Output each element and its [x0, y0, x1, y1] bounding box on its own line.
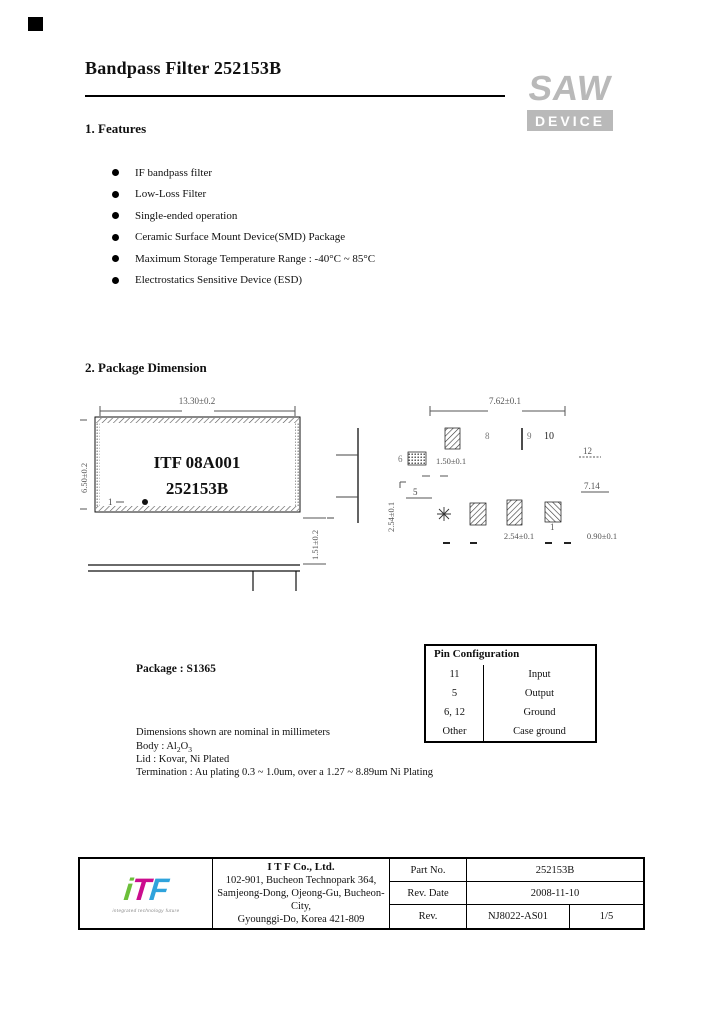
saw-device-logo: SAW DEVICE: [527, 70, 613, 131]
pin1-label: 1: [108, 497, 113, 507]
seal-hatch-bottom: [96, 506, 299, 511]
dim-thickness: 1.51±0.2: [310, 530, 320, 560]
dim-top-witness-lines: [100, 406, 295, 416]
bullet-icon: [112, 234, 119, 241]
itf-letter-f: F: [148, 872, 170, 907]
subscript: 3: [188, 745, 192, 754]
pad-label-1: 1: [550, 522, 555, 532]
pad-left-mid: [408, 452, 426, 465]
dim-side-pitch: 2.54±0.1: [386, 502, 396, 532]
bullet-icon: [112, 169, 119, 176]
feature-item: Low-Loss Filter: [112, 184, 532, 206]
seal-hatch-top: [96, 418, 299, 423]
pad-label-10: 10: [544, 431, 554, 442]
pad-label-5: 5: [413, 487, 418, 497]
pin-cell: Other: [426, 722, 483, 741]
pin-cell: 11: [426, 665, 483, 684]
dim-top-width: 13.30±0.2: [179, 396, 215, 406]
page-number: 1/5: [570, 905, 643, 928]
pin-table-body: 11 Input 5 Output 6, 12 Ground Other Cas…: [426, 665, 595, 741]
pad-bottom-2: [470, 503, 486, 525]
pad-bottom-3: [507, 500, 522, 525]
feature-text: Electrostatics Sensitive Device (ESD): [135, 274, 302, 286]
itf-logo: iTF integrated technology future: [80, 859, 213, 928]
dim-left-height: 6.50±0.2: [79, 463, 89, 493]
pin-cell: 6, 12: [426, 703, 483, 722]
features-list: IF bandpass filter Low-Loss Filter Singl…: [112, 162, 532, 291]
title-rule: [85, 95, 505, 97]
saw-logo-device-label: DEVICE: [527, 110, 613, 131]
feature-item: Single-ended operation: [112, 205, 532, 227]
company-name: I T F Co., Ltd.: [267, 861, 334, 874]
package-dimension-drawing: 13.30±0.2 ITF 08A001 252153B 1 6.50±0.2 …: [78, 390, 638, 605]
function-cell: Input: [483, 665, 595, 684]
package-dimension-heading: 2. Package Dimension: [85, 360, 207, 376]
rev-date-value: 2008-11-10: [467, 882, 643, 905]
note-body-material: Body : Al2O3: [136, 741, 192, 754]
pin-cell: 5: [426, 684, 483, 703]
feature-item: IF bandpass filter: [112, 162, 532, 184]
dim-bottom-width: 7.62±0.1: [489, 396, 521, 406]
dim-pad-width: 0.90±0.1: [587, 531, 617, 541]
feature-item: Electrostatics Sensitive Device (ESD): [112, 270, 532, 292]
footer-title-block: iTF integrated technology future I T F C…: [78, 857, 645, 930]
note-dimensions: Dimensions shown are nominal in millimet…: [136, 727, 330, 738]
dim-right: 7.14: [584, 481, 600, 491]
side-view-ticks: [327, 455, 358, 518]
pad-label-6: 6: [398, 454, 403, 464]
pad-label-9: 9: [527, 431, 532, 441]
seal-hatch-left: [96, 423, 100, 506]
part-no-value: 252153B: [467, 859, 643, 882]
pad-label-8: 8: [485, 431, 490, 441]
dim-pad-len: 1.50±0.1: [436, 456, 466, 466]
feature-text: Single-ended operation: [135, 210, 237, 222]
pin-table-title: Pin Configuration: [426, 646, 595, 665]
feature-text: Low-Loss Filter: [135, 188, 206, 200]
function-cell: Case ground: [483, 722, 595, 741]
side-view-pins: [253, 571, 296, 591]
feature-item: Ceramic Surface Mount Device(SMD) Packag…: [112, 227, 532, 249]
dim-pad-pitch: 2.54±0.1: [504, 531, 534, 541]
function-cell: Output: [483, 684, 595, 703]
part-no-label: Part No.: [390, 859, 467, 882]
device-marking-line2: 252153B: [166, 479, 228, 498]
pad-top-left: [445, 428, 460, 449]
feature-item: Maximum Storage Temperature Range : -40°…: [112, 248, 532, 270]
note-body-text: Body : Al: [136, 741, 177, 752]
saw-logo-text: SAW: [524, 70, 615, 108]
function-cell: Ground: [483, 703, 595, 722]
seal-hatch-right: [295, 423, 299, 506]
feature-text: IF bandpass filter: [135, 167, 212, 179]
rev-value: NJ8022-AS01: [467, 905, 570, 928]
bullet-icon: [112, 255, 119, 262]
company-address-block: I T F Co., Ltd. 102-901, Bucheon Technop…: [213, 859, 390, 928]
feature-text: Ceramic Surface Mount Device(SMD) Packag…: [135, 231, 345, 243]
pad-bottom-4: [545, 502, 561, 522]
itf-logo-letters: iTF: [123, 874, 170, 906]
rev-date-label: Rev. Date: [390, 882, 467, 905]
bullet-icon: [112, 191, 119, 198]
device-marking-line1: ITF 08A001: [154, 453, 241, 472]
feature-text: Maximum Storage Temperature Range : -40°…: [135, 253, 375, 265]
company-address-line: 102-901, Bucheon Technopark 364,: [226, 874, 376, 887]
bullet-icon: [112, 212, 119, 219]
company-address-line: Gyounggi-Do, Korea 421-809: [238, 913, 365, 926]
note-termination: Termination : Au plating 0.3 ~ 1.0um, ov…: [136, 767, 433, 778]
features-heading: 1. Features: [85, 121, 146, 137]
pin-configuration-table: Pin Configuration 11 Input 5 Output 6, 1…: [424, 644, 597, 743]
pad-bottom-cross: [437, 507, 451, 521]
pin1-dot: [142, 499, 148, 505]
rev-label: Rev.: [390, 905, 467, 928]
note-lid-material: Lid : Kovar, Ni Plated: [136, 754, 229, 765]
bullet-icon: [112, 277, 119, 284]
pad-label-12: 12: [583, 446, 592, 456]
page-corner-mark: [28, 17, 43, 31]
page-title: Bandpass Filter 252153B: [85, 58, 281, 79]
dim-bottom-witness: [430, 406, 565, 416]
package-type-label: Package : S1365: [136, 663, 216, 675]
itf-logo-tagline: integrated technology future: [113, 908, 180, 913]
side-view-body: [88, 565, 300, 571]
datasheet-page: Bandpass Filter 252153B SAW DEVICE 1. Fe…: [0, 0, 720, 1012]
company-address-line: Samjeong-Dong, Ojeong-Gu, Bucheon-City,: [213, 887, 389, 913]
